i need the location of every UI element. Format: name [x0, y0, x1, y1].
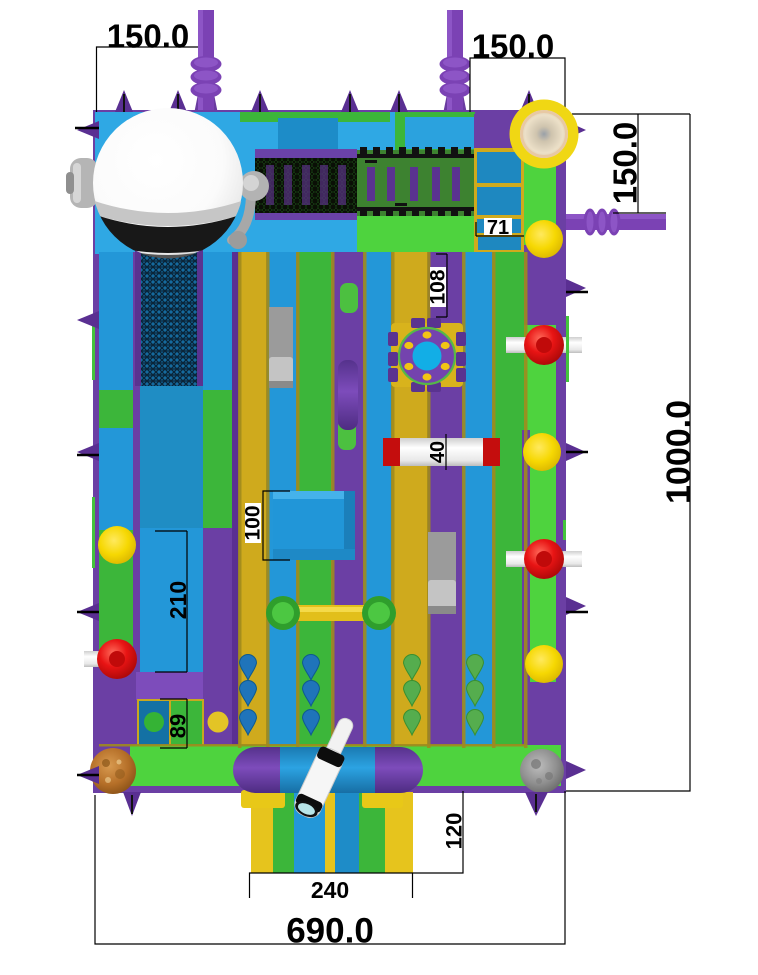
svg-text:40: 40	[427, 441, 449, 463]
svg-text:100: 100	[242, 505, 265, 540]
svg-text:690.0: 690.0	[286, 912, 374, 951]
svg-text:1000.0: 1000.0	[660, 400, 698, 504]
svg-text:210: 210	[165, 581, 191, 619]
svg-text:89: 89	[166, 714, 191, 738]
svg-text:150.0: 150.0	[107, 18, 190, 55]
svg-text:71: 71	[487, 217, 509, 239]
svg-text:150.0: 150.0	[472, 28, 555, 65]
svg-text:120: 120	[442, 813, 467, 850]
svg-text:240: 240	[311, 877, 349, 903]
svg-text:150.0: 150.0	[607, 122, 644, 205]
svg-text:108: 108	[427, 269, 450, 304]
